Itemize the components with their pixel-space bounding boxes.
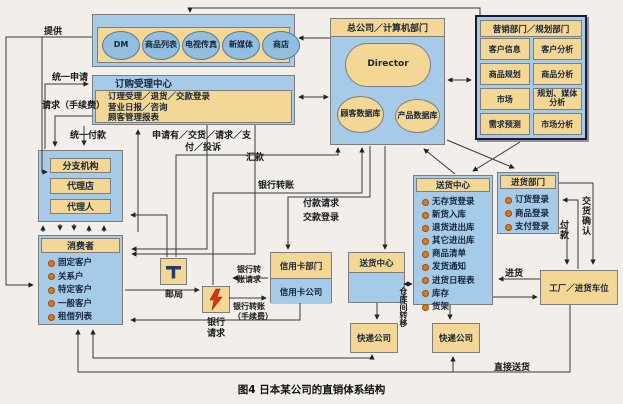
label-bank-transfer-request-2: 账请求 — [237, 274, 261, 285]
factory-box: 工厂／进货车位 — [540, 270, 618, 305]
marketing-box: 营销部门／规划部门 客户信息 客户分析 商品规划 商品分析 市场 规划、媒体分析… — [475, 15, 587, 140]
order-center-body: 订理受理／退货／交款登录 营业日报／咨询 顾客管理报表 — [95, 90, 292, 123]
purchasing-list: 订货登录 商品登录 支付登录 — [498, 191, 558, 232]
bullet-icon — [422, 264, 429, 271]
label-unified-apply: 统一申请 — [52, 70, 88, 83]
express-company-box-1: 快递公司 — [350, 323, 398, 353]
delivery-center-small-title: 送货中心 — [349, 253, 404, 273]
consumer-box: 消费者 固定客户 关系户 特定客户 一般客户 租借列表 — [38, 235, 123, 325]
figure-caption: 图4 日本某公司的直销体系结构 — [0, 382, 623, 397]
consumer-item: 关系户 — [48, 273, 122, 282]
bullet-icon — [422, 238, 429, 245]
delivery-item: 无存货登录 — [422, 198, 492, 207]
bullet-icon — [422, 212, 429, 219]
bullet-icon — [422, 290, 429, 297]
delivery-center-box: 送货中心 无存货登录 新货入库 退货进出库 其它进出库 商品清单 发货通知 进货… — [413, 175, 493, 305]
order-center-box: 订购受理中心 订理受理／退货／交款登录 营业日报／咨询 顾客管理报表 — [92, 75, 295, 125]
marketing-item: 客户分析 — [533, 38, 583, 60]
bullet-icon — [48, 287, 55, 294]
branch-box: 分支机构 代理店 代理人 — [38, 150, 123, 222]
director-label: Director — [367, 60, 408, 69]
bullet-icon — [48, 260, 55, 267]
customer-db-label: 顾客数据库 — [341, 110, 381, 118]
delivery-item: 发货通知 — [422, 263, 492, 272]
label-payment: 付款 — [557, 220, 570, 240]
marketing-grid: 客户信息 客户分析 商品规划 商品分析 市场 规划、媒体分析 需求预测 市场分析 — [480, 38, 582, 135]
channel-label: 电视传真 — [185, 41, 217, 49]
marketing-item: 客户信息 — [480, 38, 530, 60]
bullet-icon — [505, 224, 512, 231]
credit-card-company: 信用卡公司 — [271, 279, 331, 304]
marketing-item: 需求预测 — [480, 113, 530, 135]
delivery-item: 货架 — [422, 303, 492, 312]
bullet-icon — [48, 300, 55, 307]
consumer-item: 租借列表 — [48, 313, 122, 322]
delivery-item: 商品清单 — [422, 250, 492, 259]
marketing-title: 营销部门／规划部门 — [480, 20, 582, 37]
delivery-center-list: 无存货登录 新货入库 退货进出库 其它进出库 商品清单 发货通知 进货日程表 库… — [414, 194, 492, 311]
channel-dm: DM — [102, 31, 140, 60]
marketing-item: 市场分析 — [533, 113, 583, 135]
delivery-item: 其它进出库 — [422, 237, 492, 246]
consumer-title: 消费者 — [41, 238, 120, 253]
label-pay-request: 付款请求 — [303, 196, 339, 209]
request-label: 请求 — [202, 326, 230, 339]
credit-card-box: 信用卡部门 信用卡公司 — [270, 252, 332, 303]
marketing-item: 商品分析 — [533, 63, 583, 85]
diagram-canvas: DM 商品列表 电视传真 新媒体 商店 订购受理中心 订理受理／退货／交款登录 … — [0, 0, 623, 404]
post-office-label: 邮局 — [161, 287, 187, 300]
purchasing-item: 商品登录 — [505, 210, 558, 219]
delivery-item: 新货入库 — [422, 211, 492, 220]
purchasing-item: 订货登录 — [505, 196, 558, 205]
hq-product-db: 产品数据库 — [395, 99, 440, 133]
delivery-item: 进货日程表 — [422, 277, 492, 286]
hq-director-oval: Director — [345, 43, 431, 87]
channel-tv-fax: 电视传真 — [182, 31, 220, 60]
post-office-box — [160, 258, 187, 285]
bullet-icon — [422, 304, 429, 311]
order-center-line: 顾客管理报表 — [108, 113, 291, 124]
channel-label: 新媒体 — [229, 41, 253, 49]
delivery-center-small-box: 送货中心 — [348, 252, 405, 303]
purchasing-item: 支付登录 — [505, 223, 558, 232]
delivery-item: 库存 — [422, 290, 492, 299]
bullet-icon — [422, 199, 429, 206]
marketing-item: 商品规划 — [480, 63, 530, 85]
hq-customer-db: 顾客数据库 — [337, 96, 384, 133]
label-bank-transfer: 银行转账 — [258, 178, 294, 191]
purchasing-title: 进货部门 — [500, 175, 556, 189]
branch-item: 分支机构 — [50, 158, 111, 173]
label-warehouse-transfer: 仓库间转移 — [398, 287, 409, 327]
channel-label: 商品列表 — [145, 41, 177, 49]
lightning-icon — [203, 287, 229, 312]
bullet-icon — [422, 225, 429, 232]
purchasing-box: 进货部门 订货登录 商品登录 支付登录 — [497, 172, 559, 234]
label-provide: 提供 — [44, 24, 62, 37]
label-direct-delivery: 直接送货 — [494, 360, 530, 373]
label-remit: 汇款 — [246, 150, 264, 163]
consumer-item: 特定客户 — [48, 286, 122, 295]
hq-box: 总公司／计算机部门 Director 顾客数据库 产品数据库 — [330, 18, 445, 145]
bullet-icon — [505, 197, 512, 204]
order-center-line: 营业日报／咨询 — [108, 103, 291, 114]
bullet-icon — [48, 273, 55, 280]
label-unified-pay: 统一付款 — [70, 128, 106, 141]
label-request-fee: 请求（手续费） — [42, 98, 105, 111]
delivery-center-title: 送货中心 — [416, 178, 490, 192]
branch-item: 代理人 — [50, 199, 111, 214]
label-delivery-confirm: 交货确认 — [579, 196, 592, 236]
delivery-item: 退货进出库 — [422, 224, 492, 233]
channel-label: DM — [114, 41, 129, 49]
label-pay-register: 交款登录 — [303, 210, 339, 223]
product-db-label: 产品数据库 — [398, 112, 438, 120]
label-bank-transfer-fee-2: （手续费） — [233, 311, 273, 322]
bullet-icon — [422, 277, 429, 284]
bullet-icon — [505, 210, 512, 217]
bullet-icon — [48, 314, 55, 321]
bank-box — [202, 286, 230, 313]
hq-title: 总公司／计算机部门 — [331, 19, 444, 37]
marketing-item: 市场 — [480, 88, 530, 110]
channel-new-media: 新媒体 — [222, 31, 260, 60]
consumer-item: 固定客户 — [48, 259, 122, 268]
branch-item: 代理店 — [50, 178, 111, 193]
consumer-item: 一般客户 — [48, 300, 122, 309]
order-center-title: 订购受理中心 — [93, 76, 294, 90]
order-center-line: 订理受理／退货／交款登录 — [108, 92, 291, 103]
consumer-list: 固定客户 关系户 特定客户 一般客户 租借列表 — [39, 255, 122, 322]
media-channels-box: DM 商品列表 电视传真 新媒体 商店 — [92, 14, 295, 67]
bullet-icon — [422, 251, 429, 258]
channel-shop: 商店 — [262, 31, 300, 60]
express-company-box-2: 快递公司 — [432, 323, 480, 353]
marketing-item: 规划、媒体分析 — [533, 88, 583, 110]
credit-card-dept: 信用卡部门 — [271, 253, 331, 279]
channel-product-list: 商品列表 — [142, 31, 180, 60]
label-stock-in: 进货 — [505, 266, 523, 279]
channel-label: 商店 — [273, 41, 289, 49]
post-office-icon — [161, 259, 186, 284]
label-apply-flow-2: 付／投诉 — [185, 140, 221, 153]
